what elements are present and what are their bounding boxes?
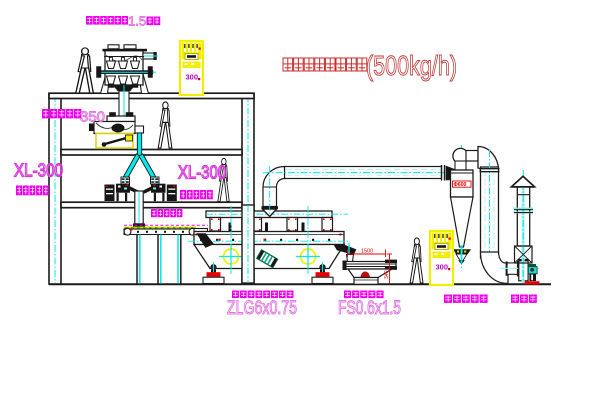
svg-text:340: 340 [384, 270, 390, 279]
svg-text:XL-300: XL-300 [178, 162, 226, 183]
svg-text:300: 300 [436, 263, 449, 272]
svg-text:ZLG6x0.75: ZLG6x0.75 [227, 298, 297, 319]
svg-text:FS0.6x1.5: FS0.6x1.5 [338, 298, 401, 319]
svg-text:Φ600: Φ600 [454, 182, 467, 188]
svg-text:1500: 1500 [361, 248, 373, 254]
svg-text:1.5: 1.5 [128, 14, 146, 29]
svg-text:(500kg/h): (500kg/h) [366, 50, 457, 81]
svg-text:XL-300: XL-300 [14, 160, 63, 181]
svg-text:350: 350 [80, 109, 105, 126]
svg-text:300: 300 [186, 73, 199, 82]
